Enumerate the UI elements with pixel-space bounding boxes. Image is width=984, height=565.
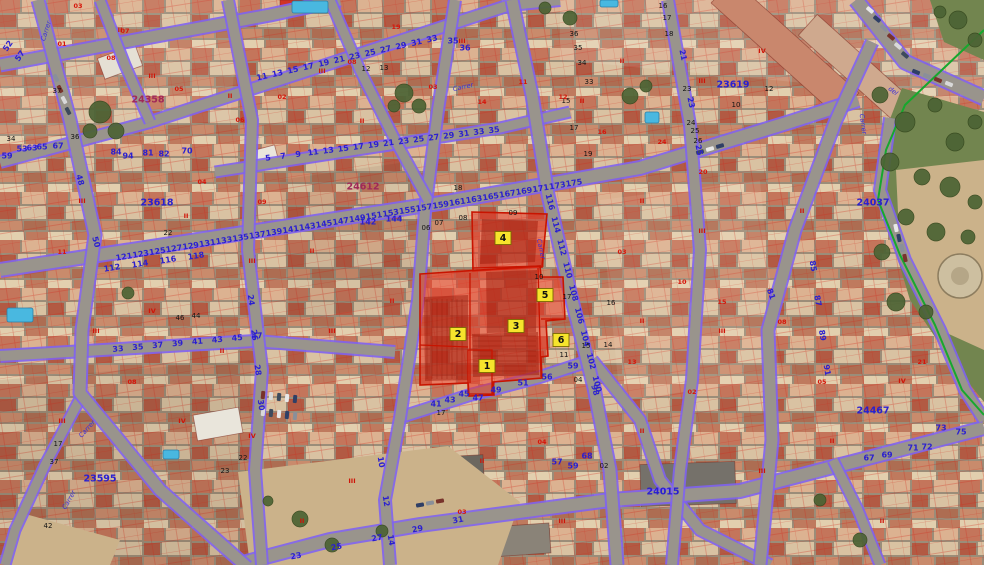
tree (122, 287, 134, 299)
parked-car (277, 410, 282, 418)
tree (853, 533, 867, 547)
highlight-badge-5[interactable] (537, 289, 553, 302)
highlight-badge-4[interactable] (495, 232, 511, 245)
cadastral-map-view[interactable]: 123456 121123125127129131133135137139141… (0, 0, 984, 565)
parked-car (269, 392, 274, 400)
highlight-badge-6[interactable] (553, 334, 569, 347)
swimming-pool (645, 112, 659, 123)
tree (539, 2, 551, 14)
parked-car (293, 395, 298, 403)
tree (898, 209, 914, 225)
tree (927, 223, 945, 241)
tree (934, 6, 946, 18)
tree (108, 123, 124, 139)
tree (388, 100, 400, 112)
tree (928, 98, 942, 112)
tree (292, 511, 308, 527)
parked-car (285, 394, 290, 402)
swimming-pool (292, 1, 328, 13)
tree (563, 11, 577, 25)
tree (874, 244, 890, 260)
tree (914, 169, 930, 185)
tree (881, 153, 899, 171)
highlight-badge-2[interactable] (450, 328, 466, 341)
tree (376, 525, 388, 537)
tree (263, 496, 273, 506)
highlight-badge-1[interactable] (479, 360, 495, 373)
tree (961, 230, 975, 244)
swimming-pool (7, 308, 33, 322)
tree (622, 88, 638, 104)
tree (949, 11, 967, 29)
parked-car (285, 411, 290, 419)
tree (968, 115, 982, 129)
tree (968, 195, 982, 209)
highlight-badge-3[interactable] (508, 320, 524, 333)
tonal-patch (280, 160, 430, 320)
tree (412, 99, 426, 113)
tree (946, 133, 964, 151)
parked-car (277, 393, 282, 401)
aerial-basemap: 123456 121123125127129131133135137139141… (0, 0, 984, 565)
tree (89, 101, 111, 123)
parked-car (269, 409, 274, 417)
tree (83, 124, 97, 138)
tree (395, 84, 413, 102)
tree (872, 87, 888, 103)
tree (940, 177, 960, 197)
tree (640, 80, 652, 92)
swimming-pool (163, 450, 179, 459)
tree (895, 112, 915, 132)
tree (968, 33, 982, 47)
parked-car (261, 391, 266, 399)
tree (887, 293, 905, 311)
swimming-pool (600, 0, 618, 7)
tree (325, 538, 339, 552)
tree (814, 494, 826, 506)
parked-car (293, 412, 298, 420)
round-plaza-center (951, 267, 969, 285)
parked-car (261, 408, 266, 416)
tree (919, 305, 933, 319)
